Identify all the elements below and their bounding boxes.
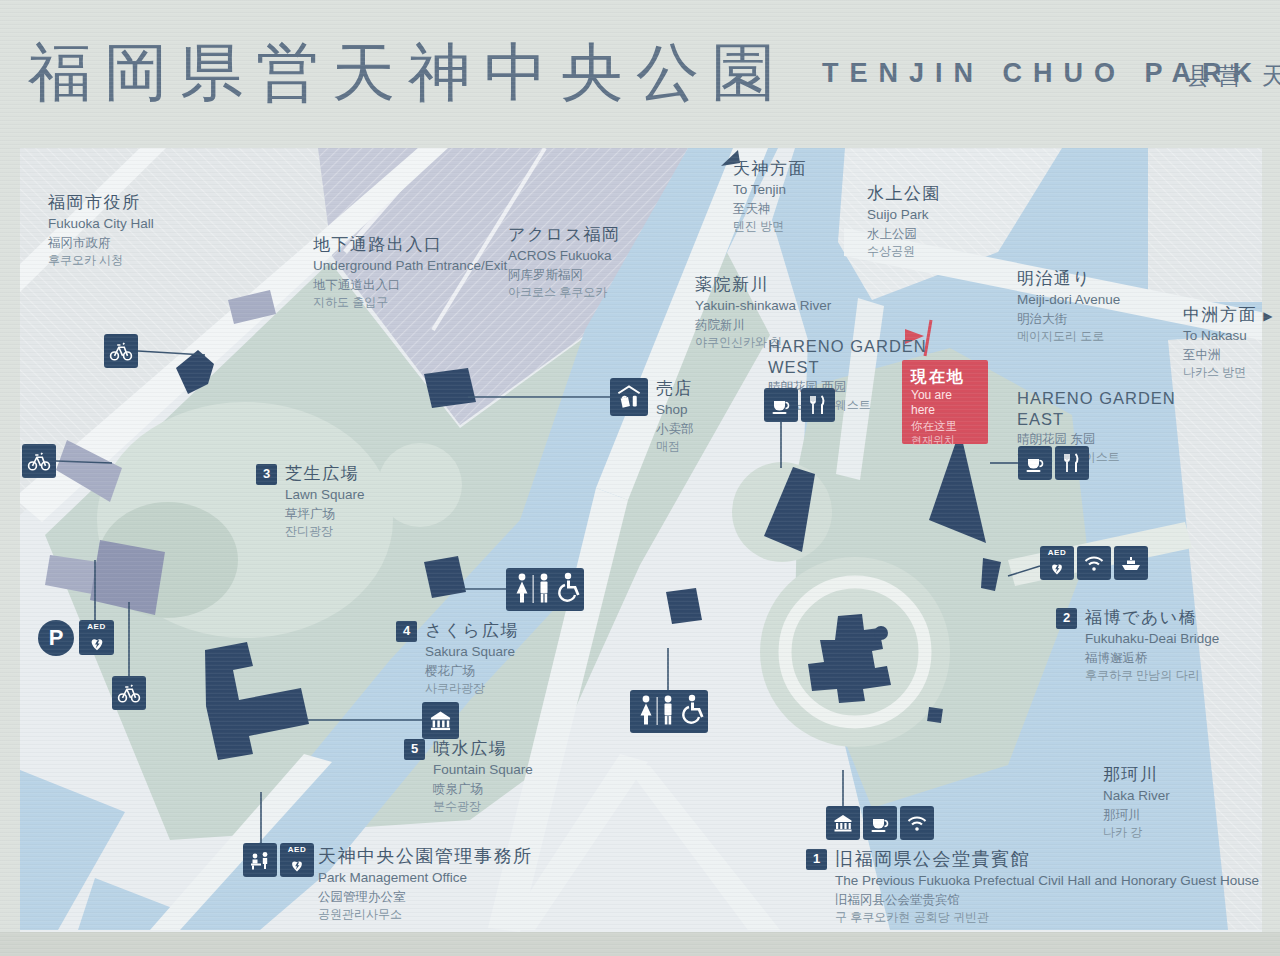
wifi-icon bbox=[900, 806, 934, 840]
badge-3: 3 bbox=[256, 464, 277, 485]
label-fountain-square: 5噴水広場 Fountain Square 喷泉广场 분수광장 bbox=[404, 738, 533, 814]
park-sign-board: 福岡県営天神中央公園 TENJIN CHUO PARK 县营 天 bbox=[0, 0, 1280, 956]
label-to-nakasu: 中洲方面 ▶ To Nakasu 至中洲 나카스 방면 bbox=[1183, 304, 1274, 380]
label-to-tenjin: 天神方面 To Tenjin 至天神 텐진 방면 bbox=[733, 158, 807, 234]
label-sakura-square: 4さくら広場 Sakura Square 樱花广场 사쿠라광장 bbox=[396, 620, 519, 696]
to-nakasu-arrow-icon: ▶ bbox=[1263, 309, 1274, 323]
board-frame-bottom bbox=[0, 932, 1280, 956]
bicycle-icon bbox=[22, 444, 56, 478]
info-desk-icon bbox=[243, 843, 277, 877]
label-acros-fukuoka: アクロス福岡 ACROS Fukuoka 阿库罗斯福冈 아크로스 후쿠오카 bbox=[508, 224, 621, 300]
label-suijo-park: 水上公園 Suijo Park 水上公园 수상공원 bbox=[867, 183, 941, 259]
hareno-west-amenities bbox=[764, 388, 835, 422]
label-lawn-square: 3芝生広場 Lawn Square 草坪广场 잔디광장 bbox=[256, 463, 365, 539]
riverside-amenities: AED bbox=[1040, 546, 1148, 580]
label-meiji-dori: 明治通り Meiji-dori Avenue 明治大街 메이지도리 도로 bbox=[1017, 268, 1120, 344]
badge-5: 5 bbox=[404, 739, 425, 760]
monument-icon bbox=[422, 702, 459, 739]
ship-icon bbox=[1114, 546, 1148, 580]
you-are-here-box: 現在地 You are here 你在这里 현재위치 bbox=[902, 360, 988, 444]
label-underground-entrance: 地下通路出入口 Underground Path Entrance/Exit 地… bbox=[313, 234, 507, 310]
label-shop: 売店 Shop 小卖部 매점 bbox=[656, 378, 694, 454]
cafe-icon bbox=[764, 388, 798, 422]
office-amenities: AED bbox=[243, 843, 314, 877]
label-naka-river: 那珂川 Naka River 那珂川 나카 강 bbox=[1103, 764, 1170, 840]
label-city-hall: 福岡市役所 Fukuoka City Hall 福冈市政府 후쿠오카 시청 bbox=[48, 192, 154, 268]
bicycle-icon bbox=[104, 334, 138, 368]
shop-icon bbox=[610, 378, 648, 416]
guesthouse-icon bbox=[826, 806, 860, 840]
parking-icon: P bbox=[38, 620, 74, 656]
hareno-east-amenities bbox=[1018, 446, 1089, 480]
restaurant-icon bbox=[1055, 446, 1089, 480]
wifi-icon bbox=[1077, 546, 1111, 580]
toilet-icon bbox=[630, 690, 708, 733]
badge-2: 2 bbox=[1056, 608, 1077, 629]
label-park-management-office: 天神中央公園管理事務所 Park Management Office 公园管理办… bbox=[318, 845, 533, 923]
wheelchair-icon bbox=[683, 695, 703, 723]
toilet-icon bbox=[506, 568, 584, 611]
aed-icon: AED bbox=[1040, 546, 1074, 580]
civil-hall-amenities bbox=[826, 806, 934, 840]
label-deai-bridge: 2福博であい橋 Fukuhaku-Deai Bridge 福博邂逅桥 후쿠하쿠 … bbox=[1056, 607, 1219, 683]
label-civil-hall: 1旧福岡県公会堂貴賓館 The Previous Fukuoka Prefect… bbox=[806, 848, 1259, 926]
aed-icon: AED bbox=[79, 620, 114, 655]
badge-4: 4 bbox=[396, 621, 417, 642]
bicycle-icon bbox=[112, 676, 146, 710]
aed-icon: AED bbox=[280, 843, 314, 877]
wheelchair-icon bbox=[559, 573, 579, 601]
cafe-icon bbox=[863, 806, 897, 840]
badge-1: 1 bbox=[806, 849, 827, 870]
restaurant-icon bbox=[801, 388, 835, 422]
cafe-icon bbox=[1018, 446, 1052, 480]
